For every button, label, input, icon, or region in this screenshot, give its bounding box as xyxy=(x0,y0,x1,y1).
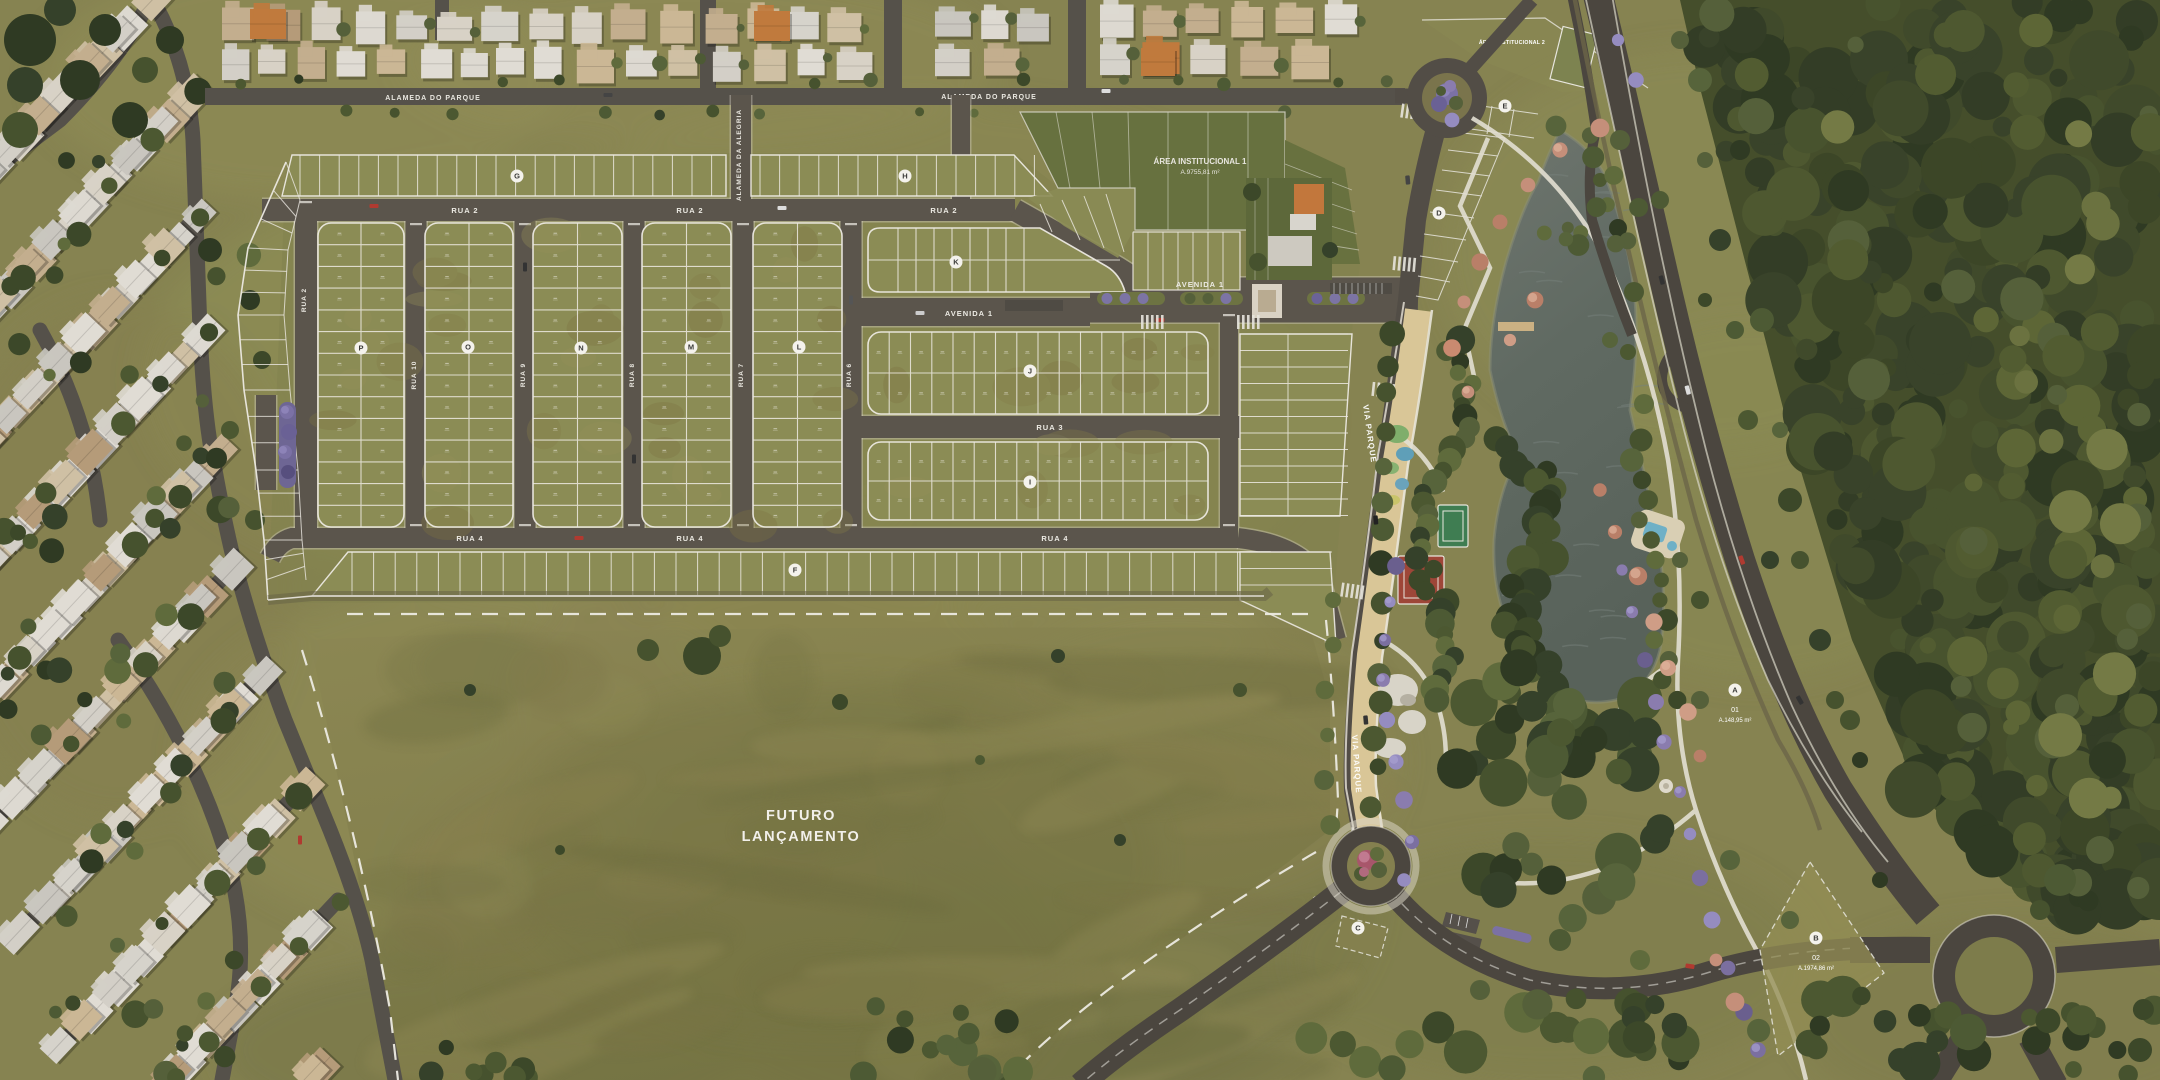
svg-text:RUA 2: RUA 2 xyxy=(451,206,478,215)
svg-text:D: D xyxy=(1436,209,1442,218)
svg-text:02: 02 xyxy=(1812,955,1820,962)
svg-text:RUA 10: RUA 10 xyxy=(411,361,418,390)
svg-text:I: I xyxy=(1029,478,1031,487)
svg-text:LANÇAMENTO: LANÇAMENTO xyxy=(742,829,861,845)
svg-text:E: E xyxy=(1502,102,1507,111)
svg-text:RUA 7: RUA 7 xyxy=(738,363,745,387)
svg-text:RUA 4: RUA 4 xyxy=(676,534,703,543)
svg-text:G: G xyxy=(514,172,520,181)
svg-text:A.148,95 m²: A.148,95 m² xyxy=(1719,718,1752,724)
svg-text:O: O xyxy=(465,343,471,352)
svg-text:ALAMEDA DA ALEGRIA: ALAMEDA DA ALEGRIA xyxy=(736,109,743,201)
svg-text:AVENIDA 1: AVENIDA 1 xyxy=(945,309,993,318)
svg-text:RUA 2: RUA 2 xyxy=(930,206,957,215)
svg-text:RUA 2: RUA 2 xyxy=(301,288,308,312)
svg-text:ALAMEDA DO PARQUE: ALAMEDA DO PARQUE xyxy=(385,95,481,102)
svg-text:AVENIDA 1: AVENIDA 1 xyxy=(1176,280,1224,289)
svg-text:FUTURO: FUTURO xyxy=(766,808,836,824)
svg-text:M: M xyxy=(688,343,694,352)
svg-text:C: C xyxy=(1355,924,1361,933)
svg-text:RUA 6: RUA 6 xyxy=(846,363,853,387)
svg-text:A.9755,81 m²: A.9755,81 m² xyxy=(1180,169,1220,176)
svg-text:RUA 9: RUA 9 xyxy=(520,363,527,387)
svg-text:A.1974,86 m²: A.1974,86 m² xyxy=(1798,966,1834,972)
svg-text:F: F xyxy=(793,566,798,575)
svg-text:RUA 4: RUA 4 xyxy=(456,534,483,543)
svg-text:N: N xyxy=(578,344,583,353)
svg-text:RUA 8: RUA 8 xyxy=(629,363,636,387)
svg-text:P: P xyxy=(358,344,363,353)
svg-text:L: L xyxy=(797,343,802,352)
svg-text:RUA 2: RUA 2 xyxy=(676,206,703,215)
svg-text:01: 01 xyxy=(1731,707,1739,714)
svg-text:RUA 3: RUA 3 xyxy=(1036,423,1063,432)
svg-text:A: A xyxy=(1732,686,1738,695)
svg-text:J: J xyxy=(1028,367,1032,376)
svg-text:H: H xyxy=(902,172,907,181)
svg-text:B: B xyxy=(1813,934,1819,943)
svg-text:ÁREA INSTITUCIONAL 1: ÁREA INSTITUCIONAL 1 xyxy=(1154,157,1247,166)
svg-text:RUA 4: RUA 4 xyxy=(1041,534,1068,543)
svg-text:K: K xyxy=(953,258,959,267)
